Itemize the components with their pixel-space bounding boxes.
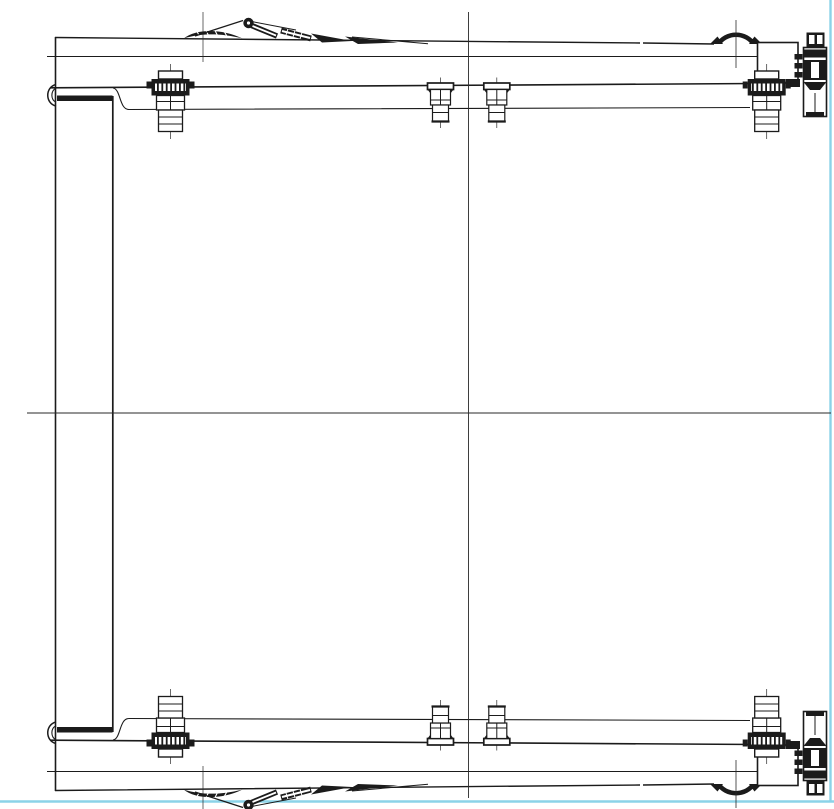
paper-background xyxy=(0,0,834,809)
cad-drawing-svg xyxy=(0,0,834,809)
drawing-stage xyxy=(0,0,834,809)
